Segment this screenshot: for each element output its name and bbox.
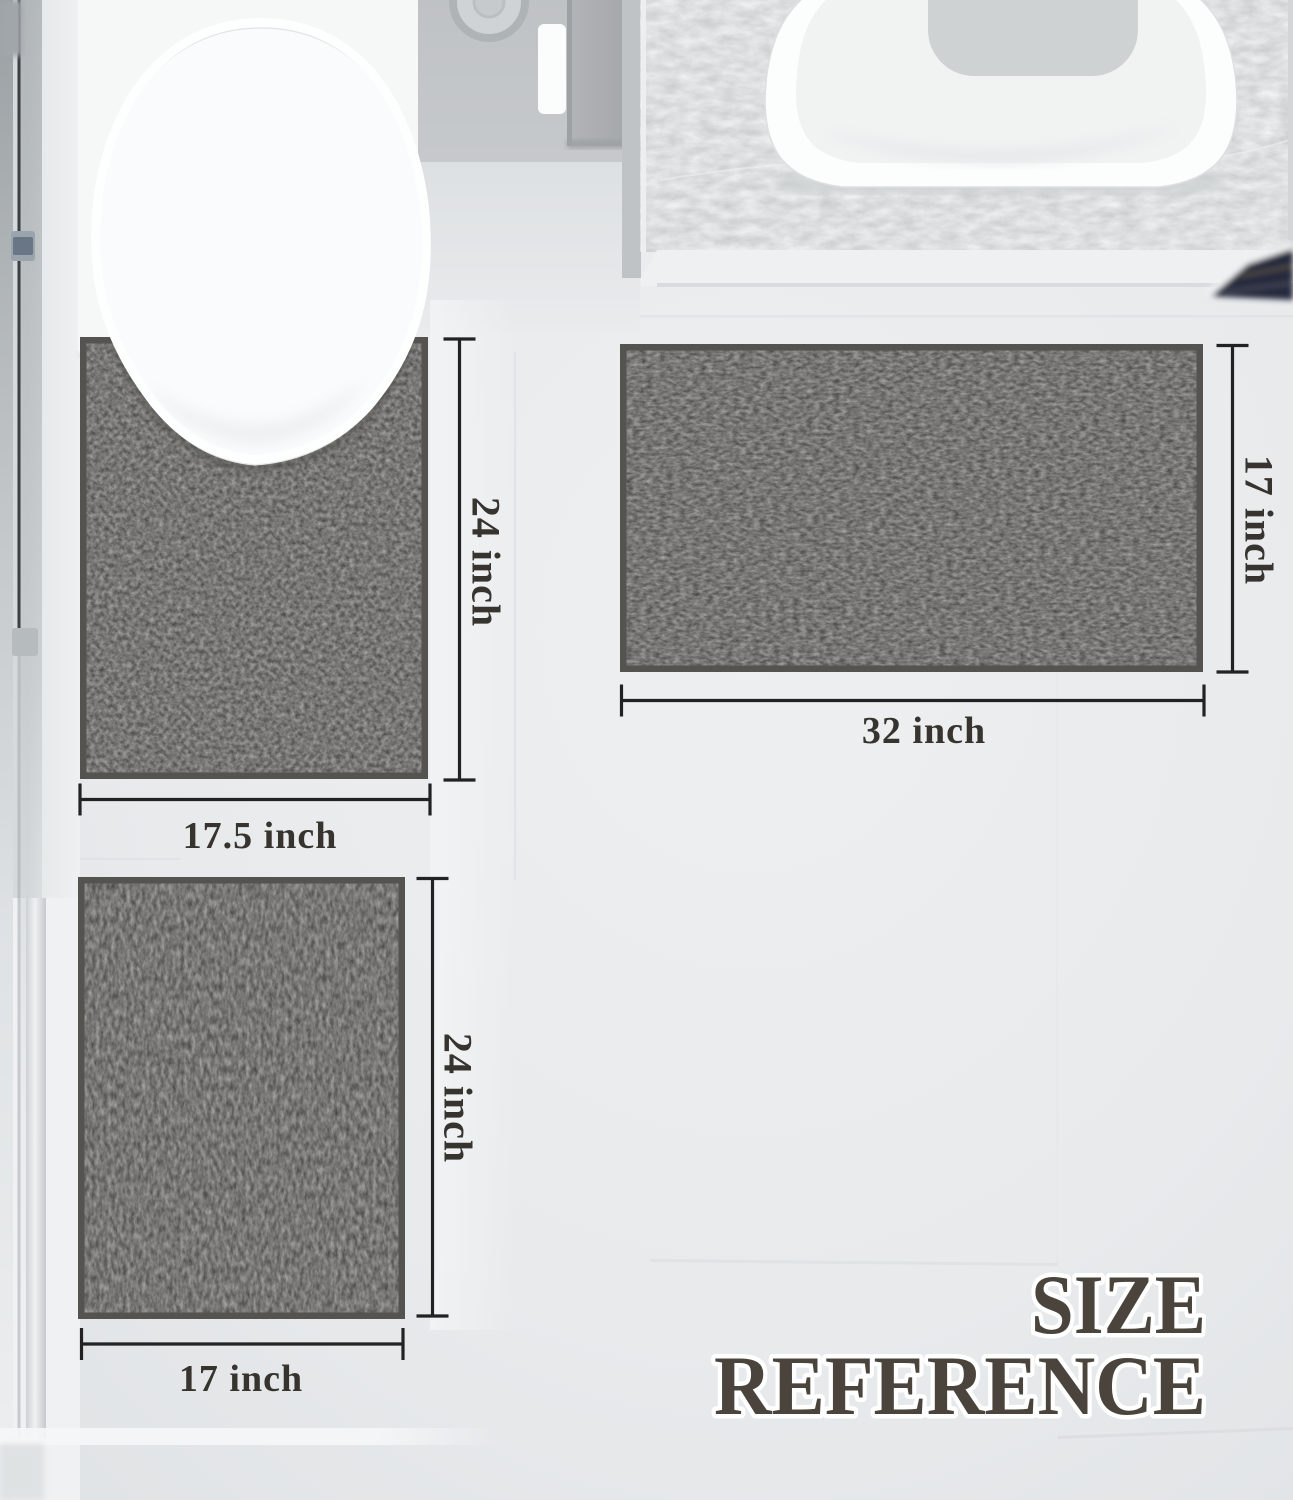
svg-text:REFERENCE: REFERENCE: [714, 1339, 1206, 1433]
svg-text:24 inch: 24 inch: [436, 1033, 481, 1163]
svg-text:SIZE: SIZE: [1031, 1258, 1206, 1352]
svg-text:17.5 inch: 17.5 inch: [183, 815, 338, 857]
svg-text:17 inch: 17 inch: [1237, 455, 1282, 585]
svg-text:17 inch: 17 inch: [179, 1358, 303, 1400]
svg-text:32 inch: 32 inch: [862, 710, 986, 752]
svg-text:24 inch: 24 inch: [464, 497, 509, 627]
